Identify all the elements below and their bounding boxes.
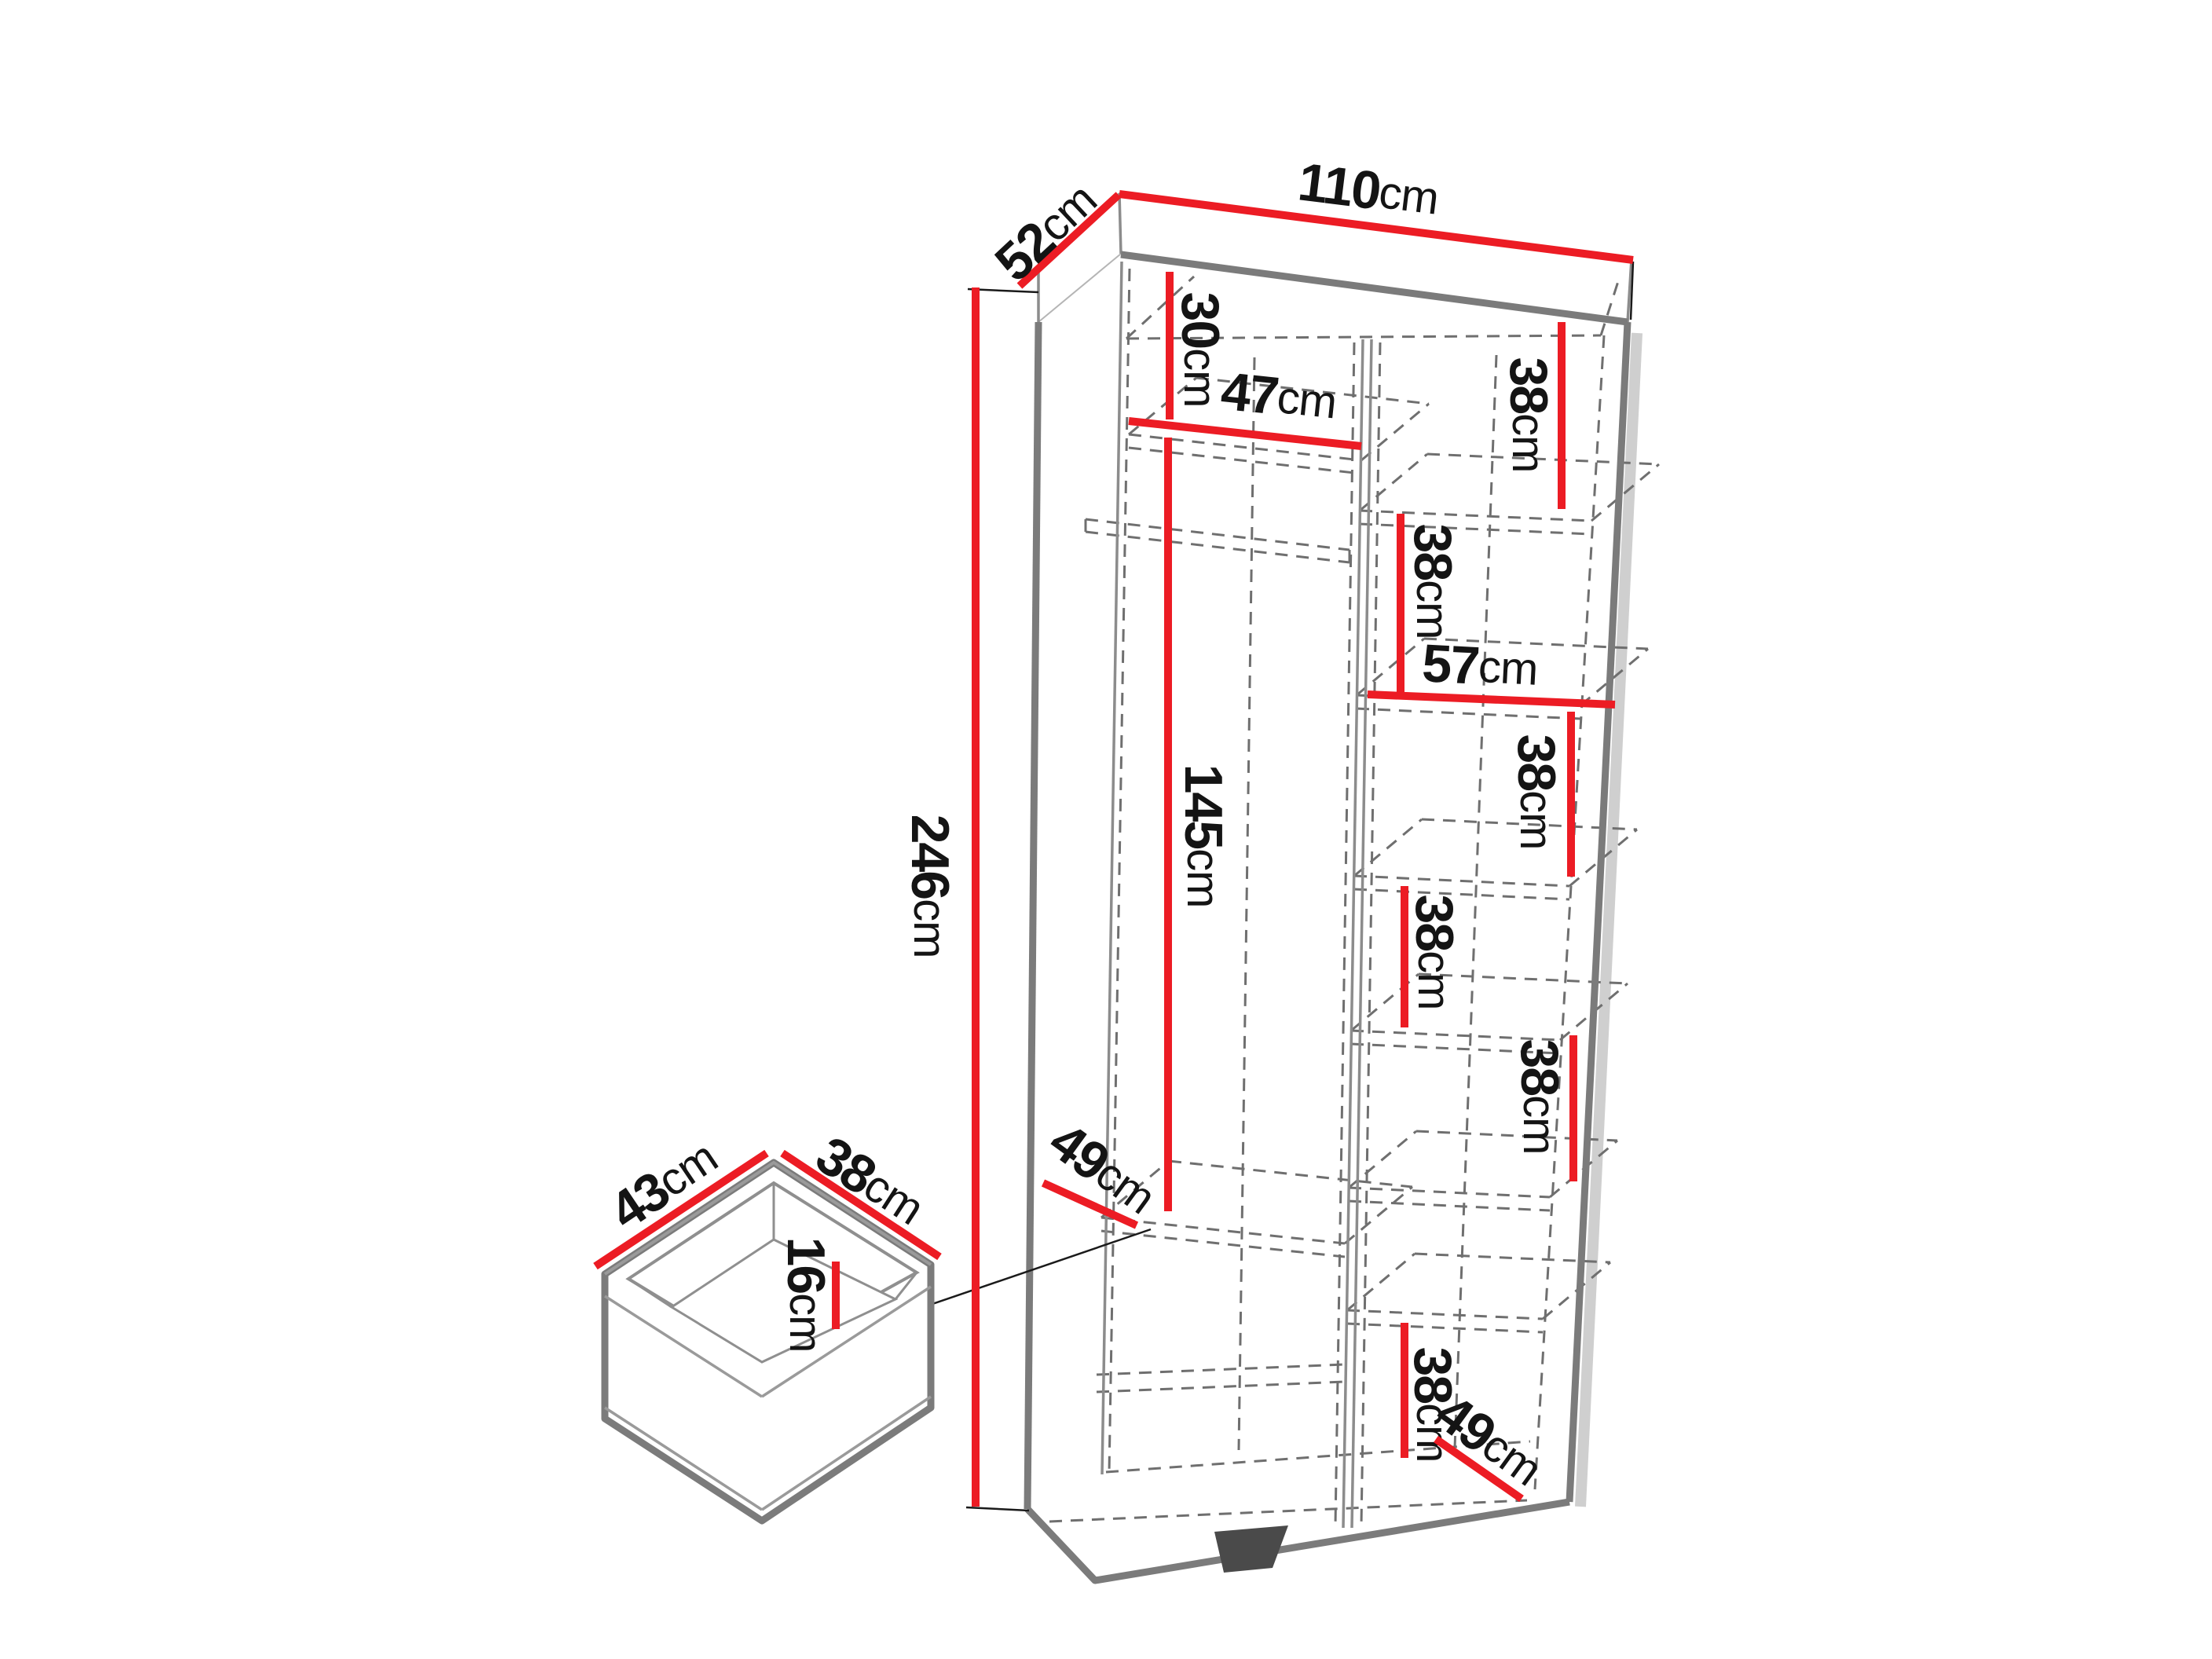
right-shelf-5-front-thickness	[1349, 1201, 1550, 1210]
dim-unit-comp5-38: cm	[1514, 1095, 1566, 1154]
hidden-line	[1097, 1364, 1345, 1375]
center-foot	[1214, 1525, 1288, 1573]
dim-value-drawer-height-16: 16	[776, 1237, 836, 1294]
right-shelf-5-front	[1349, 1188, 1550, 1197]
thin-edge	[1343, 339, 1363, 1528]
dim-unit-shelf-57: cm	[1477, 640, 1539, 694]
dim-unit-comp2-38: cm	[1408, 580, 1459, 639]
dim-label-comp1-38: 38cm	[1499, 357, 1558, 473]
dim-label-hang-145: 145cm	[1174, 764, 1233, 908]
dim-value-shelf-47: 47	[1218, 361, 1280, 427]
right-shelf-1-front	[1360, 511, 1591, 521]
plinth-foot	[1214, 1525, 1288, 1573]
right-edge-shadow	[1580, 333, 1637, 1507]
left-shelf-1-front-thickness	[1129, 448, 1361, 474]
outer-edge	[1569, 322, 1628, 1502]
dim-unit-drawer-height-16: cm	[781, 1293, 832, 1352]
thin-edge	[1352, 339, 1372, 1528]
diagram-page: 52cm110cm30cm47cm38cm38cm57cm38cm38cm145…	[0, 0, 2212, 1659]
dim-label-comp4-38: 38cm	[1404, 895, 1464, 1010]
dim-unit-comp1-38: cm	[1503, 413, 1555, 472]
dim-value-height-246: 246	[900, 815, 960, 899]
dim-label-drawer-height-16: 16cm	[776, 1237, 836, 1353]
dim-value-top-gap-30: 30	[1170, 292, 1230, 349]
dim-label-comp3-38: 38cm	[1507, 734, 1566, 850]
dim-value-hang-145: 145	[1174, 764, 1233, 849]
dim-line-shelf-57	[1368, 694, 1615, 705]
hidden-line	[1239, 357, 1254, 1450]
dim-value-comp5-38: 38	[1510, 1039, 1569, 1096]
hidden-line	[1335, 342, 1354, 1525]
dim-unit-hang-145: cm	[1178, 848, 1229, 907]
left-shelf-2-right	[1345, 1187, 1412, 1243]
left-shelf-2-back	[1169, 1161, 1412, 1187]
wardrobe-dimension-diagram: 52cm110cm30cm47cm38cm38cm57cm38cm38cm145…	[0, 0, 2212, 1659]
dim-label-comp5-38: 38cm	[1510, 1039, 1569, 1155]
dim-label-shelf-47: 47cm	[1218, 361, 1339, 433]
dim-value-shelf-57: 57	[1421, 633, 1481, 696]
right-shelf-6-front	[1347, 1310, 1543, 1319]
dim-unit-comp4-38: cm	[1409, 950, 1460, 1009]
dim-label-shelf-57: 57cm	[1421, 633, 1540, 699]
right-shelf-6-front-thickness	[1347, 1324, 1543, 1332]
dim-unit-height-246: cm	[905, 899, 956, 958]
dim-value-comp3-38: 38	[1507, 734, 1566, 791]
dim-unit-width-110: cm	[1376, 166, 1441, 224]
hidden-line	[1097, 1382, 1345, 1392]
dim-label-comp2-38: 38cm	[1403, 524, 1463, 639]
dim-unit-shelf-47: cm	[1275, 371, 1339, 428]
dim-unit-comp3-38: cm	[1511, 790, 1562, 849]
right-shelf-2-front-thickness	[1357, 709, 1580, 719]
dim-label-height-246: 246cm	[900, 815, 960, 958]
hidden-line	[1361, 342, 1380, 1525]
dim-unit-top-gap-30: cm	[1175, 348, 1226, 407]
dim-value-comp2-38: 38	[1403, 524, 1463, 580]
dim-value-comp4-38: 38	[1404, 895, 1464, 951]
outer-edge	[1027, 322, 1038, 1509]
left-shelf-2-front	[1101, 1218, 1345, 1243]
dim-value-comp1-38: 38	[1499, 357, 1558, 414]
right-shelf-3-front	[1354, 876, 1569, 886]
right-shelf-1-front-thickness	[1360, 524, 1591, 534]
extension-line	[966, 1507, 1029, 1511]
thin-edge	[1119, 193, 1121, 254]
dim-value-width-110: 110	[1295, 152, 1383, 221]
left-shelf-1-front	[1129, 434, 1361, 460]
shadow-layer	[1580, 333, 1637, 1507]
bottom-edge	[1027, 1502, 1569, 1580]
